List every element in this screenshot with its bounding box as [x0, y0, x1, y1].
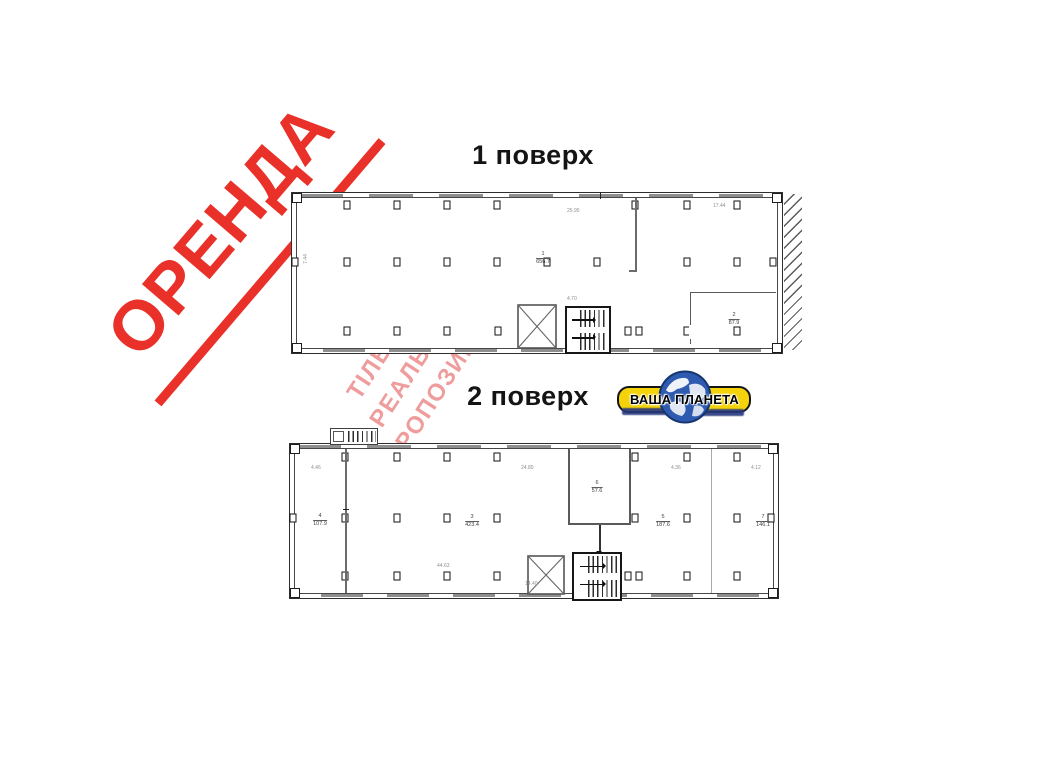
- column-marker: [394, 514, 401, 523]
- room-area: 146.1: [756, 522, 770, 529]
- stair-direction-arrow: [580, 566, 605, 568]
- corner-column: [768, 588, 778, 598]
- corner-column: [292, 343, 302, 353]
- room-label: 5 187.6: [656, 514, 670, 528]
- partition-tick: [343, 509, 349, 510]
- room-area: 187.6: [656, 522, 670, 529]
- column-marker: [494, 572, 501, 581]
- floor1-partition: [635, 198, 637, 272]
- floor2-exterior-stair: [330, 428, 378, 445]
- room-number: 4: [313, 513, 327, 521]
- column-marker: [770, 258, 777, 267]
- dimension-text: 44.63: [437, 563, 450, 569]
- column-marker: [444, 327, 451, 336]
- company-logo: ВАША ПЛАНЕТА: [612, 369, 754, 423]
- room-number: 5: [656, 514, 670, 522]
- dimension-text: 4.46: [311, 465, 321, 471]
- floor2-left-partition: [345, 449, 347, 593]
- column-marker: [444, 258, 451, 267]
- floor2-shaft-xbox: [527, 555, 565, 595]
- dimension-text: 4.70: [567, 296, 577, 302]
- dimension-text: 17.44: [713, 203, 726, 209]
- wall-joint-tick: [600, 192, 601, 199]
- xbox-glyph: [517, 304, 557, 349]
- corner-column: [290, 444, 300, 454]
- stair-direction-arrow: [572, 319, 595, 321]
- column-marker: [292, 258, 299, 267]
- stair-landing: [333, 431, 344, 442]
- corner-column: [772, 193, 782, 203]
- column-marker: [494, 201, 501, 210]
- room-label: 2 87.9: [729, 312, 740, 326]
- corner-column: [768, 444, 778, 454]
- floor1-shaft-xbox: [517, 304, 557, 349]
- corner-column: [290, 588, 300, 598]
- floor1-staircase: [565, 306, 611, 354]
- room-number: 7: [756, 514, 770, 522]
- dimension-text: 4.36: [671, 465, 681, 471]
- column-marker: [684, 453, 691, 462]
- room-number: 1: [536, 251, 550, 259]
- column-marker: [394, 201, 401, 210]
- floor2-title: 2 поверх: [418, 381, 638, 412]
- column-marker: [444, 201, 451, 210]
- column-marker: [684, 201, 691, 210]
- room-label: 6 57.6: [592, 480, 603, 494]
- column-marker: [625, 327, 632, 336]
- column-marker: [636, 572, 643, 581]
- corner-column: [292, 193, 302, 203]
- logo-wordmark: ВАША ПЛАНЕТА: [617, 386, 752, 413]
- column-marker: [444, 572, 451, 581]
- floor2-plan: 4 107.9 3 423.4 6 57.6 5 187.6 7 146.1 4…: [289, 443, 779, 599]
- column-marker: [684, 572, 691, 581]
- column-marker: [684, 514, 691, 523]
- floor2-light-partition: [711, 449, 712, 593]
- dimension-text: 25.95: [567, 208, 580, 214]
- column-marker: [734, 453, 741, 462]
- column-marker: [394, 258, 401, 267]
- room-area: 57.6: [592, 488, 603, 495]
- column-marker: [625, 572, 632, 581]
- column-marker: [632, 453, 639, 462]
- listing-image: ОРЕНДА ТІЛЬКИ РЕАЛЬНІ ПРОПОЗИЦІЇ 1 повер…: [0, 0, 1047, 771]
- column-marker: [734, 572, 741, 581]
- stair-treads: [348, 431, 375, 442]
- column-marker: [495, 327, 502, 336]
- column-marker: [594, 258, 601, 267]
- column-marker: [734, 258, 741, 267]
- room-area: 87.9: [729, 320, 740, 327]
- dimension-text: 24.80: [521, 465, 534, 471]
- column-marker: [394, 453, 401, 462]
- floor1-title: 1 поверх: [423, 140, 643, 171]
- dimension-text: 4.12: [751, 465, 761, 471]
- column-marker: [684, 258, 691, 267]
- room-area: 656.7: [536, 259, 550, 266]
- column-marker: [632, 514, 639, 523]
- floor1-plan: 1 656.7 2 87.9 25.95 17.44 7.44 4.70: [291, 192, 783, 354]
- column-marker: [344, 258, 351, 267]
- room-number: 2: [729, 312, 740, 320]
- room-label: 3 423.4: [465, 514, 479, 528]
- column-marker: [394, 327, 401, 336]
- room-area: 423.4: [465, 522, 479, 529]
- column-marker: [734, 201, 741, 210]
- column-marker: [344, 327, 351, 336]
- room-label: 7 146.1: [756, 514, 770, 528]
- dimension-text: 7.44: [303, 254, 309, 264]
- corner-column: [772, 343, 782, 353]
- column-marker: [636, 327, 643, 336]
- floor1-room-2-door-gap: [689, 325, 691, 339]
- column-marker: [444, 514, 451, 523]
- room-area: 107.9: [313, 521, 327, 528]
- column-marker: [444, 453, 451, 462]
- column-marker: [494, 514, 501, 523]
- room-number: 6: [592, 480, 603, 488]
- column-marker: [734, 514, 741, 523]
- room-number: 3: [465, 514, 479, 522]
- column-marker: [290, 514, 297, 523]
- room-label: 4 107.9: [313, 513, 327, 527]
- xbox-glyph: [527, 555, 565, 595]
- section-line: [599, 525, 601, 553]
- floor1-right-hatch: [784, 194, 802, 350]
- stair-direction-arrow: [580, 584, 605, 586]
- floor1-partition-foot: [629, 270, 637, 272]
- column-marker: [344, 201, 351, 210]
- floor2-staircase: [572, 552, 622, 601]
- dimension-text: 14.40: [525, 581, 538, 587]
- column-marker: [394, 572, 401, 581]
- stair-direction-arrow: [572, 337, 595, 339]
- column-marker: [494, 258, 501, 267]
- column-marker: [494, 453, 501, 462]
- room-label: 1 656.7: [536, 251, 550, 265]
